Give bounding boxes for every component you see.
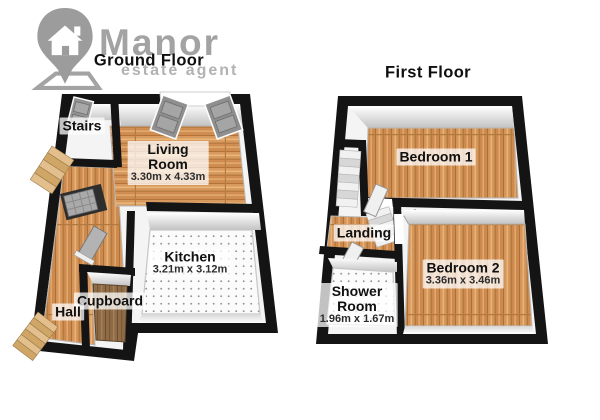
room-label-bedroom-2: Bedroom 2 3.36m x 3.46m (423, 260, 504, 289)
room-label-hall: Hall (52, 303, 84, 320)
gf-kitchen-bottom-face (138, 314, 264, 323)
ff-bed2-bottom-face (403, 326, 534, 334)
ground-floor-plan (13, 92, 278, 361)
room-label-bedroom-1: Bedroom 1 (396, 148, 475, 165)
ff-bed1-wallface (348, 106, 514, 128)
ff-bed2-wallface (401, 210, 525, 224)
room-label-kitchen: Kitchen 3.21m x 3.12m (150, 249, 231, 278)
room-label-shower-room: Shower Room 1.96m x 1.67m (317, 283, 398, 327)
house-location-pin-icon (26, 6, 104, 92)
floorplan-page: Manor estate agent Ground Floor First Fl… (0, 0, 600, 420)
room-label-stairs: Stairs (60, 117, 105, 134)
room-label-cupboard: Cupboard (74, 292, 146, 309)
ff-bed2-door-gap (394, 214, 404, 244)
room-label-living-room: Living Room 3.30m x 4.33m (128, 141, 209, 185)
gf-kitchen-wallface (147, 213, 261, 230)
room-label-landing: Landing (334, 224, 394, 241)
first-floor-title: First Floor (385, 64, 471, 83)
ff-stairwell-steps (336, 150, 361, 207)
ground-floor-title: Ground Floor (94, 52, 204, 71)
